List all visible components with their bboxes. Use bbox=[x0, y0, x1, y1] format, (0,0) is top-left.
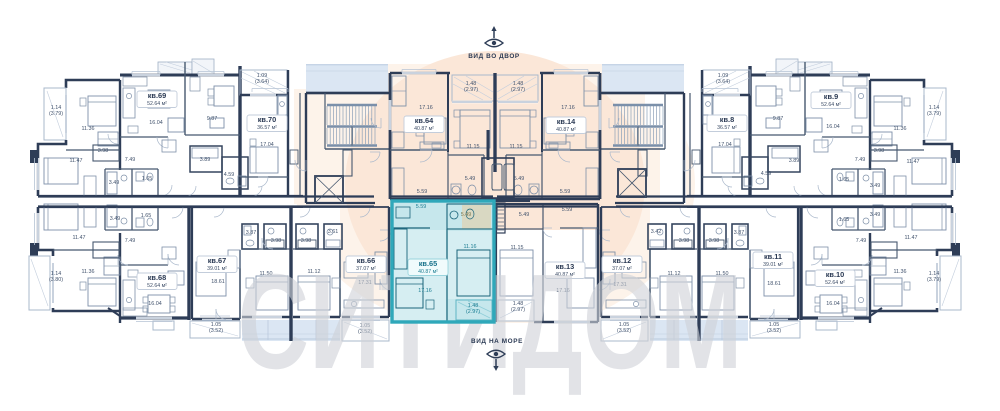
svg-text:7.49: 7.49 bbox=[125, 238, 136, 244]
svg-text:52.64 м²: 52.64 м² bbox=[147, 101, 167, 107]
svg-text:3.98: 3.98 bbox=[709, 238, 720, 244]
svg-text:5.59: 5.59 bbox=[416, 204, 427, 210]
svg-text:17.04: 17.04 bbox=[260, 142, 274, 148]
svg-text:(3.64): (3.64) bbox=[255, 79, 269, 85]
svg-text:52.64 м²: 52.64 м² bbox=[821, 102, 841, 108]
svg-text:ВИД НА МОРЕ: ВИД НА МОРЕ bbox=[471, 338, 523, 345]
svg-text:52.64 м²: 52.64 м² bbox=[147, 283, 167, 289]
svg-text:11.47: 11.47 bbox=[72, 235, 85, 241]
svg-text:9.87: 9.87 bbox=[207, 116, 218, 122]
svg-text:17.16: 17.16 bbox=[418, 288, 432, 294]
svg-text:3.89: 3.89 bbox=[200, 157, 211, 163]
svg-text:39.01 м²: 39.01 м² bbox=[207, 266, 227, 272]
svg-text:17.16: 17.16 bbox=[419, 105, 433, 111]
svg-text:5.59: 5.59 bbox=[560, 189, 571, 195]
svg-text:40.87 м²: 40.87 м² bbox=[418, 269, 438, 275]
svg-text:4.59: 4.59 bbox=[761, 171, 772, 177]
svg-text:3.42: 3.42 bbox=[651, 229, 662, 235]
svg-text:18.61: 18.61 bbox=[767, 281, 781, 287]
svg-text:17.04: 17.04 bbox=[718, 142, 732, 148]
svg-text:кв.9: кв.9 bbox=[824, 92, 838, 101]
svg-text:кв.64: кв.64 bbox=[415, 116, 434, 125]
svg-text:3.49: 3.49 bbox=[870, 212, 881, 218]
svg-text:кв.8: кв.8 bbox=[720, 115, 734, 124]
svg-text:39.01 м²: 39.01 м² bbox=[763, 262, 783, 268]
svg-text:11.47: 11.47 bbox=[906, 159, 919, 165]
svg-text:3.89: 3.89 bbox=[789, 158, 800, 164]
svg-text:3.49: 3.49 bbox=[109, 180, 120, 186]
svg-text:4.59: 4.59 bbox=[224, 172, 235, 178]
svg-text:кв.65: кв.65 bbox=[419, 259, 438, 268]
svg-text:1.65: 1.65 bbox=[142, 176, 153, 182]
svg-text:16.04: 16.04 bbox=[148, 301, 162, 307]
svg-text:11.15: 11.15 bbox=[509, 144, 522, 150]
svg-text:16.04: 16.04 bbox=[149, 120, 163, 126]
svg-text:11.47: 11.47 bbox=[904, 235, 917, 241]
svg-text:3.49: 3.49 bbox=[110, 216, 121, 222]
svg-text:11.15: 11.15 bbox=[466, 144, 479, 150]
svg-text:кв.67: кв.67 bbox=[208, 256, 227, 265]
svg-text:7.49: 7.49 bbox=[856, 238, 867, 244]
svg-text:11.36: 11.36 bbox=[893, 126, 906, 132]
svg-text:(3.64): (3.64) bbox=[716, 79, 730, 85]
svg-text:3.98: 3.98 bbox=[301, 238, 312, 244]
svg-text:11.36: 11.36 bbox=[81, 269, 94, 275]
svg-text:3.61: 3.61 bbox=[328, 229, 339, 235]
svg-text:40.87 м²: 40.87 м² bbox=[414, 126, 434, 132]
svg-text:5.49: 5.49 bbox=[519, 212, 530, 218]
svg-text:кв.14: кв.14 bbox=[557, 117, 576, 126]
svg-text:7.49: 7.49 bbox=[125, 157, 136, 163]
svg-text:(2.97): (2.97) bbox=[464, 87, 478, 93]
svg-text:11.36: 11.36 bbox=[893, 269, 906, 275]
svg-text:40.87 м²: 40.87 м² bbox=[556, 127, 576, 133]
svg-text:3.87: 3.87 bbox=[246, 230, 257, 236]
svg-text:11.36: 11.36 bbox=[81, 126, 94, 132]
svg-text:16.04: 16.04 bbox=[826, 124, 840, 130]
svg-text:36.57 м²: 36.57 м² bbox=[717, 125, 737, 131]
svg-text:1.65: 1.65 bbox=[839, 177, 850, 183]
svg-text:11.16: 11.16 bbox=[463, 244, 476, 250]
svg-text:кв.69: кв.69 bbox=[148, 91, 167, 100]
svg-text:3.49: 3.49 bbox=[870, 183, 881, 189]
svg-text:3.98: 3.98 bbox=[98, 148, 109, 154]
svg-text:7.49: 7.49 bbox=[855, 157, 866, 163]
svg-text:1.65: 1.65 bbox=[839, 217, 850, 223]
svg-text:3.87: 3.87 bbox=[734, 230, 745, 236]
svg-text:18.61: 18.61 bbox=[211, 279, 225, 285]
svg-text:(3.80): (3.80) bbox=[49, 277, 63, 283]
svg-text:(3.52): (3.52) bbox=[767, 328, 781, 334]
svg-text:ВИД ВО ДВОР: ВИД ВО ДВОР bbox=[468, 53, 520, 60]
svg-text:11.47: 11.47 bbox=[69, 158, 82, 164]
svg-text:(3.79): (3.79) bbox=[927, 277, 941, 283]
svg-text:(3.52): (3.52) bbox=[209, 328, 223, 334]
svg-text:(3.79): (3.79) bbox=[49, 111, 63, 117]
svg-text:5.49: 5.49 bbox=[465, 176, 476, 182]
svg-text:5.49: 5.49 bbox=[461, 212, 472, 218]
svg-text:36.57 м²: 36.57 м² bbox=[257, 125, 277, 131]
svg-text:(2.97): (2.97) bbox=[466, 309, 480, 315]
svg-text:5.49: 5.49 bbox=[514, 176, 525, 182]
svg-text:(3.79): (3.79) bbox=[927, 111, 941, 117]
svg-text:(2.97): (2.97) bbox=[511, 87, 525, 93]
svg-text:16.04: 16.04 bbox=[826, 301, 840, 307]
svg-text:3.98: 3.98 bbox=[874, 148, 885, 154]
svg-text:кв.68: кв.68 bbox=[148, 273, 167, 282]
svg-text:5.59: 5.59 bbox=[417, 189, 428, 195]
svg-text:52.64 м²: 52.64 м² bbox=[825, 280, 845, 286]
svg-text:3.98: 3.98 bbox=[679, 238, 690, 244]
svg-text:3.98: 3.98 bbox=[271, 238, 282, 244]
svg-text:кв.10: кв.10 bbox=[826, 270, 845, 279]
svg-text:1.65: 1.65 bbox=[141, 213, 152, 219]
svg-text:9.87: 9.87 bbox=[773, 116, 784, 122]
svg-text:кв.11: кв.11 bbox=[764, 252, 782, 261]
svg-text:кв.70: кв.70 bbox=[258, 115, 277, 124]
svg-text:5.59: 5.59 bbox=[562, 207, 573, 213]
svg-text:17.16: 17.16 bbox=[561, 105, 575, 111]
